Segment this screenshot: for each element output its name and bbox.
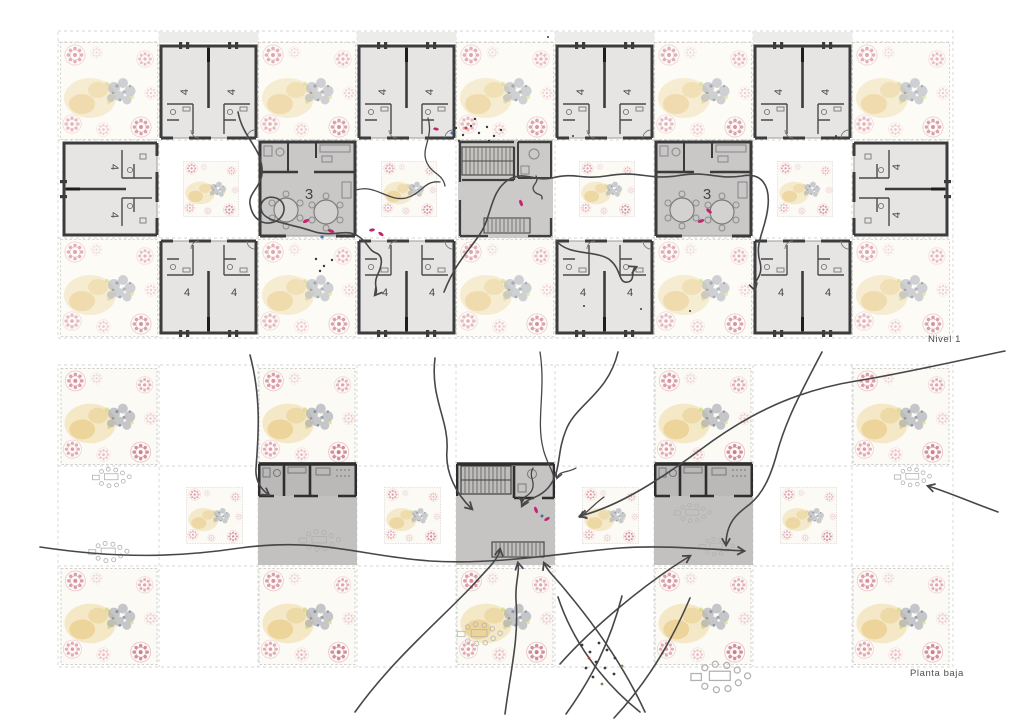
garden-square [853, 568, 949, 664]
garden-square [655, 240, 752, 337]
dark-scatter-marks [581, 642, 624, 686]
unit-number: 4 [429, 287, 435, 299]
plans-canvas: 4 4 4 4 4 4 4 4 4 4 4 4 4 4 4 4 4 4 4 4 … [0, 0, 1024, 724]
blue-mark [541, 515, 544, 518]
dwelling-pair [755, 241, 850, 337]
unit-number: 4 [575, 89, 587, 95]
unit-number: 4 [891, 212, 903, 218]
patio-garden-inset [183, 161, 238, 216]
unit-number: 4 [622, 89, 634, 95]
planta-baja-caption: Planta baja [910, 668, 964, 679]
dwelling-pair [161, 241, 256, 337]
unit-number: 4 [377, 89, 389, 95]
unit-number: 4 [108, 212, 120, 218]
garden-square [457, 240, 554, 337]
dwelling-pair [557, 241, 652, 337]
unit-number: 4 [580, 287, 586, 299]
unit-number: 4 [820, 89, 832, 95]
unit-number: 4 [226, 89, 238, 95]
furniture-sketch [894, 467, 931, 487]
dwelling-pair [359, 241, 454, 337]
common-room-number: 3 [703, 186, 711, 203]
garden-square [655, 368, 751, 464]
dwelling-pair-side [60, 143, 157, 235]
dwelling-pair [359, 42, 454, 138]
unit-number: 4 [773, 89, 785, 95]
garden-square [655, 43, 752, 140]
drawing-sheet: 4 4 4 4 4 4 4 4 4 4 4 4 4 4 4 4 4 4 4 4 … [0, 0, 1024, 724]
furniture-sketch [93, 467, 132, 487]
patio-garden-inset [381, 161, 436, 216]
garden-square [61, 43, 158, 140]
garden-square [259, 240, 356, 337]
unit-number: 4 [424, 89, 436, 95]
unit-number: 4 [179, 89, 191, 95]
garden-square [853, 43, 950, 140]
unit-number: 4 [184, 287, 190, 299]
garden-square [61, 568, 157, 664]
garden-square [259, 568, 355, 664]
ground-modules [258, 462, 753, 565]
garden-small-inset [186, 487, 242, 543]
unit-number: 4 [231, 287, 237, 299]
furniture-sketch [89, 541, 129, 562]
garden-small-inset [780, 487, 836, 543]
garden-square [853, 368, 949, 464]
plan-planta-baja [40, 351, 1005, 718]
dwelling-pair [755, 42, 850, 138]
garden-square [61, 240, 158, 337]
plan-nivel-1: 4 4 4 4 4 4 4 4 4 4 4 4 4 4 4 4 4 4 4 4 … [58, 31, 953, 338]
unit-number: 4 [891, 164, 903, 170]
garden-square [259, 43, 356, 140]
stair-core [458, 140, 553, 238]
patio-garden-inset [777, 161, 832, 216]
dwelling-pair-side [854, 143, 951, 235]
unit-number: 4 [825, 287, 831, 299]
garden-square [259, 368, 355, 464]
patio-garden-inset [579, 161, 634, 216]
unit-number: 4 [778, 287, 784, 299]
furniture-sketch [691, 661, 751, 692]
garden-square [655, 568, 751, 664]
unit-number: 4 [627, 287, 633, 299]
unit-number: 4 [382, 287, 388, 299]
unit-number: 4 [108, 164, 120, 170]
dwelling-pair [557, 42, 652, 138]
garden-small-inset [384, 487, 440, 543]
nivel1-caption: Nivel 1 [928, 334, 961, 345]
garden-square [61, 368, 157, 464]
garden-square [457, 568, 553, 664]
common-room-number: 3 [305, 186, 313, 203]
terrace-strips [159, 32, 852, 43]
ground-stair-core [456, 462, 555, 565]
garden-square [853, 240, 950, 337]
